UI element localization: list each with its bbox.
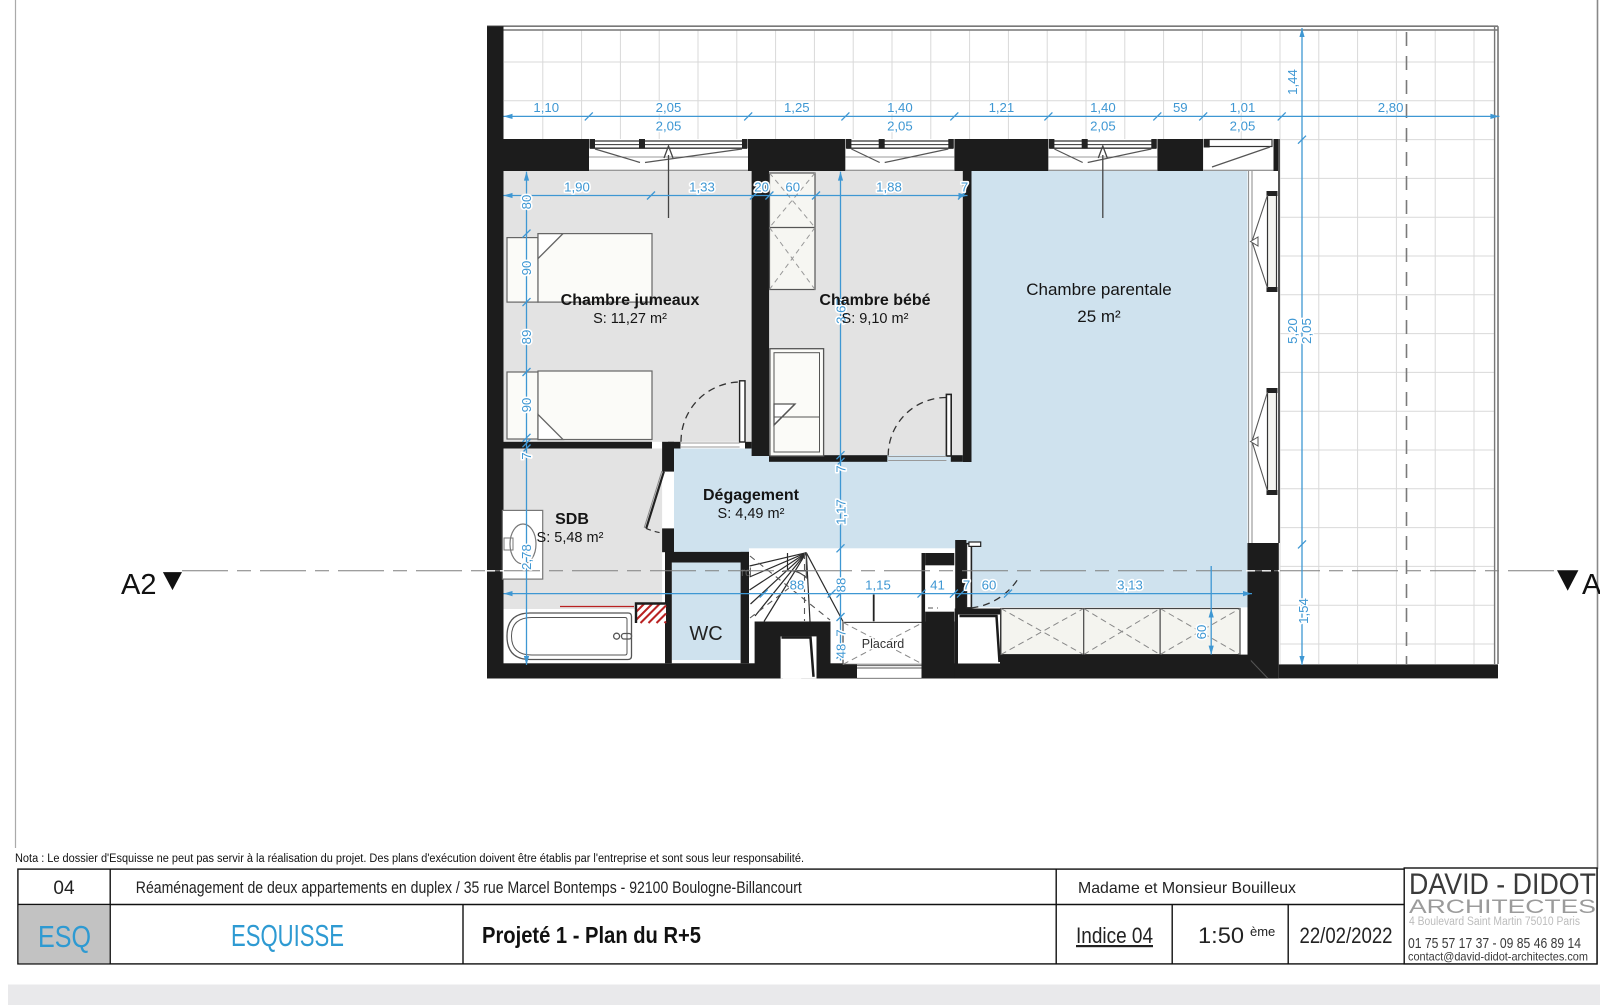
svg-text:1:50: 1:50	[1198, 923, 1244, 948]
svg-text:4 Boulevard Saint Martin 75010: 4 Boulevard Saint Martin 75010 Paris	[1409, 916, 1580, 928]
svg-text:2,05: 2,05	[1090, 119, 1116, 134]
svg-text:contact@david-didot-architecte: contact@david-didot-architectes.com	[1408, 950, 1588, 964]
svg-text:5,20: 5,20	[1285, 318, 1300, 344]
svg-text:Madame et Monsieur Bouilleux: Madame et Monsieur Bouilleux	[1078, 880, 1296, 897]
svg-text:7: 7	[834, 629, 849, 636]
svg-text:2,05: 2,05	[1230, 119, 1256, 134]
svg-text:S: 5,48 m²: S: 5,48 m²	[537, 530, 604, 546]
svg-text:3,13: 3,13	[1117, 578, 1143, 593]
svg-text:60: 60	[982, 578, 997, 593]
svg-text:Indice 04: Indice 04	[1076, 923, 1153, 948]
svg-text:80: 80	[519, 195, 534, 210]
svg-text:ESQUISSE: ESQUISSE	[231, 918, 344, 953]
svg-text:Projeté 1 - Plan du R+5: Projeté 1 - Plan du R+5	[482, 922, 701, 948]
svg-text:2,05: 2,05	[656, 119, 682, 134]
svg-text:7: 7	[519, 452, 534, 459]
svg-text:90: 90	[519, 261, 534, 276]
svg-text:1,90: 1,90	[564, 180, 590, 195]
svg-text:WC: WC	[689, 623, 722, 645]
svg-text:41: 41	[930, 578, 945, 593]
svg-text:22/02/2022: 22/02/2022	[1300, 923, 1393, 948]
svg-text:48: 48	[834, 644, 849, 659]
svg-text:SDB: SDB	[555, 511, 589, 528]
svg-text:A2: A2	[1582, 569, 1600, 601]
svg-text:1,21: 1,21	[989, 100, 1015, 115]
svg-text:1,54: 1,54	[1296, 598, 1311, 624]
svg-text:1,25: 1,25	[784, 100, 810, 115]
svg-text:60: 60	[785, 180, 800, 195]
svg-text:2,05: 2,05	[887, 119, 913, 134]
svg-text:S: 4,49 m²: S: 4,49 m²	[718, 506, 785, 522]
svg-text:ème: ème	[1250, 924, 1275, 939]
svg-text:2,80: 2,80	[1378, 100, 1404, 115]
svg-text:Dégagement: Dégagement	[703, 487, 800, 504]
svg-text:1,17: 1,17	[834, 499, 849, 525]
svg-text:88: 88	[790, 578, 805, 593]
svg-text:7: 7	[961, 180, 968, 195]
svg-text:ARCHITECTES: ARCHITECTES	[1409, 897, 1596, 918]
svg-text:Placard: Placard	[862, 637, 904, 651]
svg-text:2,05: 2,05	[1299, 318, 1314, 344]
svg-text:59: 59	[1173, 100, 1188, 115]
svg-text:ESQ: ESQ	[38, 919, 91, 954]
svg-text:S: 9,10 m²: S: 9,10 m²	[842, 311, 909, 327]
svg-text:7: 7	[834, 465, 849, 472]
svg-text:1,88: 1,88	[876, 180, 902, 195]
svg-text:1,44: 1,44	[1285, 69, 1300, 95]
svg-text:04: 04	[53, 878, 75, 899]
svg-text:Nota : Le dossier d'Esquisse n: Nota : Le dossier d'Esquisse ne peut pas…	[15, 853, 804, 865]
svg-text:2,78: 2,78	[519, 544, 534, 570]
svg-text:1,40: 1,40	[1090, 100, 1116, 115]
svg-text:89: 89	[519, 330, 534, 345]
svg-text:20: 20	[754, 180, 769, 195]
svg-text:A2: A2	[121, 569, 156, 601]
svg-text:7: 7	[963, 578, 970, 593]
svg-text:Chambre jumeaux: Chambre jumeaux	[561, 292, 700, 309]
svg-text:rd: rd	[741, 565, 752, 579]
svg-text:90: 90	[519, 398, 534, 413]
svg-text:Réaménagement de deux appartem: Réaménagement de deux appartements en du…	[136, 879, 802, 897]
svg-text:60: 60	[1194, 625, 1209, 640]
svg-text:1,33: 1,33	[689, 180, 715, 195]
svg-text:1,10: 1,10	[533, 100, 559, 115]
svg-text:25 m²: 25 m²	[1077, 307, 1121, 326]
svg-text:2,05: 2,05	[656, 100, 682, 115]
svg-text:1,15: 1,15	[865, 578, 891, 593]
svg-text:1,40: 1,40	[887, 100, 913, 115]
svg-text:S: 11,27 m²: S: 11,27 m²	[593, 311, 667, 327]
svg-text:Chambre parentale: Chambre parentale	[1026, 280, 1172, 299]
svg-text:Chambre bébé: Chambre bébé	[819, 292, 930, 309]
svg-text:1,01: 1,01	[1230, 100, 1256, 115]
